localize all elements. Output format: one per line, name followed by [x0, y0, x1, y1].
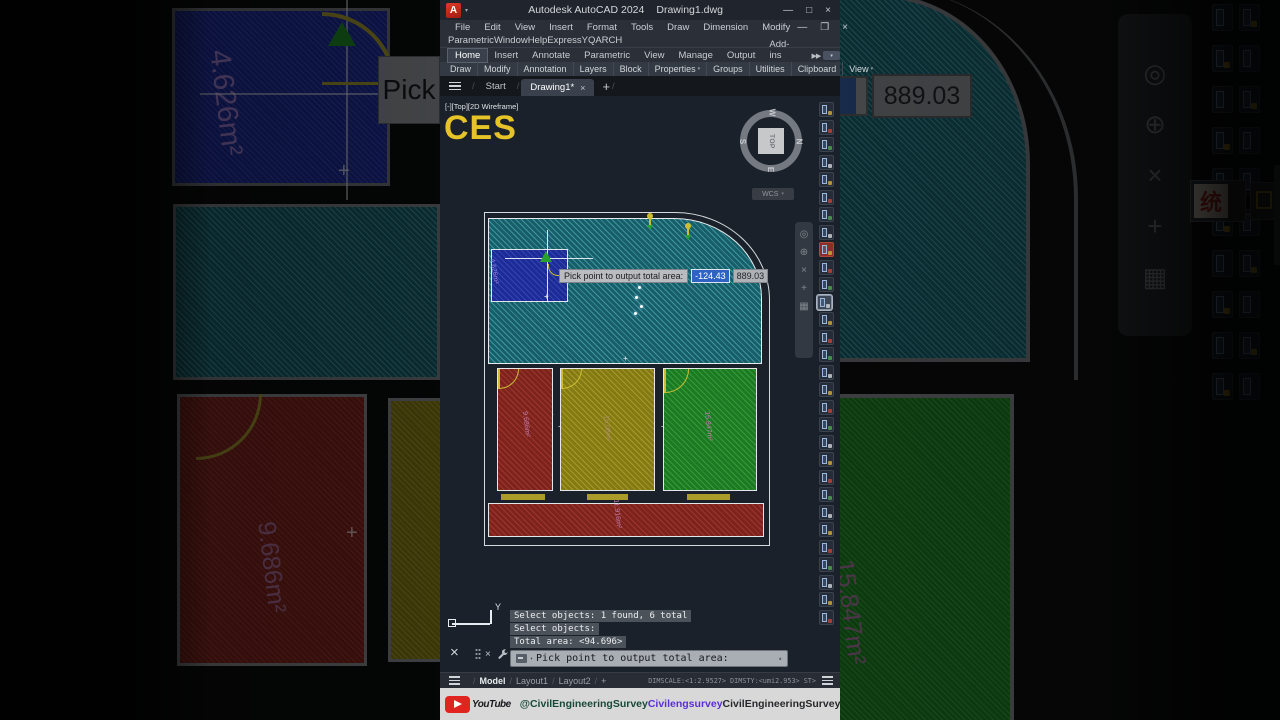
- tab-layout2[interactable]: Layout2: [559, 676, 591, 686]
- sparkle: [640, 305, 643, 308]
- pick-point-marker: [540, 251, 552, 262]
- wrench-icon[interactable]: [497, 648, 509, 666]
- ribbon-panel-row: Draw Modify Annotation Layers Block Prop…: [440, 62, 840, 76]
- menu-dimension[interactable]: Dimension: [696, 22, 755, 33]
- toolbar-icon[interactable]: [819, 155, 834, 170]
- ribbon-overflow-icon[interactable]: ▶▶: [811, 52, 820, 60]
- tab-insert[interactable]: Insert: [487, 49, 525, 62]
- screenshot-root: 4.626m² Pick 9.686m² + + 889.03 15.847m²…: [0, 0, 1280, 720]
- area-label-strip: 11.916m²: [612, 499, 622, 529]
- window-sill: [687, 494, 730, 500]
- viewcube-south[interactable]: S: [738, 139, 747, 144]
- close-button[interactable]: ×: [825, 5, 831, 16]
- tab-home[interactable]: Home: [448, 49, 487, 62]
- chevron-down-icon[interactable]: ▾: [530, 656, 533, 662]
- autocad-window: A ▾ Autodesk AutoCAD 2024 Drawing1.dwg —…: [440, 0, 840, 688]
- toolbar-icon[interactable]: [819, 312, 834, 327]
- youtube-wordmark: YouTube: [472, 699, 511, 710]
- navigation-bar[interactable]: ◎⊕×+▦: [795, 222, 813, 358]
- expand-history-icon[interactable]: ▴: [778, 655, 782, 662]
- toolbar-icon[interactable]: [819, 102, 834, 117]
- menu-modify[interactable]: Modify: [755, 22, 797, 33]
- panel-modify[interactable]: Modify: [478, 62, 518, 76]
- doc-minimize-button[interactable]: —: [797, 22, 807, 33]
- file-tab-drawing1[interactable]: Drawing1* ×: [521, 79, 594, 96]
- toolbar-icon[interactable]: [819, 452, 834, 467]
- toolbar-icon[interactable]: [819, 400, 834, 415]
- viewcube-top-face[interactable]: TOP: [758, 128, 784, 154]
- tab-separator: /: [517, 81, 520, 92]
- drag-handle-icon[interactable]: [475, 648, 481, 661]
- tab-output[interactable]: Output: [720, 49, 763, 62]
- command-close-icon[interactable]: ×: [450, 644, 459, 661]
- menu-insert[interactable]: Insert: [542, 22, 580, 33]
- sparkle: [638, 286, 641, 289]
- close-tab-icon[interactable]: ×: [580, 83, 585, 93]
- ucs-icon-origin: [448, 619, 456, 627]
- floor-plan-drawing: 4.626m² Pick point to output total area:…: [484, 212, 770, 546]
- tab-model[interactable]: Model: [480, 676, 506, 686]
- area-label-green: 15.847m²: [703, 411, 713, 441]
- area-label-olive: 15.08m²: [602, 415, 612, 441]
- strip-red: 11.916m²: [488, 503, 764, 537]
- tab-parametric[interactable]: Parametric: [577, 49, 637, 62]
- menu-express[interactable]: Express: [547, 35, 581, 46]
- panel-block[interactable]: Block: [614, 62, 649, 76]
- sparkle: [634, 312, 637, 315]
- door-hinge: [664, 369, 666, 393]
- toolbar-icon[interactable]: [819, 540, 834, 555]
- menu-window[interactable]: Window: [494, 35, 528, 46]
- channel-name-center: Civilengsurvey: [648, 698, 723, 710]
- chevron-down-icon: ▾: [698, 66, 701, 72]
- toolbar-icon[interactable]: [819, 557, 834, 572]
- ribbon-state-button[interactable]: ▾: [823, 51, 840, 60]
- menu-draw[interactable]: Draw: [660, 22, 696, 33]
- maximize-button[interactable]: □: [806, 5, 812, 16]
- panel-clipboard[interactable]: Clipboard: [792, 62, 844, 76]
- toolbar-icon[interactable]: [819, 610, 834, 625]
- autocad-logo-icon[interactable]: A: [446, 3, 461, 18]
- menu-parametric[interactable]: Parametric: [448, 35, 494, 46]
- window-sill: [587, 494, 628, 500]
- minimize-button[interactable]: —: [783, 5, 793, 16]
- tab-separator: /: [472, 81, 475, 92]
- command-prompt-text[interactable]: Pick point to output total area:: [536, 653, 729, 664]
- command-history: Select objects: 1 found, 6 total Select …: [510, 610, 691, 649]
- toolbar-icon[interactable]: [819, 120, 834, 135]
- tooltip-field-x[interactable]: -124.43: [691, 269, 730, 283]
- toolbar-icon[interactable]: [819, 207, 834, 222]
- tooltip-field-y[interactable]: 889.03: [733, 269, 769, 283]
- toolbar-icon[interactable]: [819, 172, 834, 187]
- room-olive: 15.08m²: [560, 368, 655, 491]
- tab-separator: /: [595, 676, 598, 686]
- chevron-down-icon: ▾: [871, 66, 874, 72]
- viewcube-east[interactable]: E: [766, 167, 775, 172]
- toolbar-icon[interactable]: [819, 137, 834, 152]
- toolbar-icon[interactable]: [819, 435, 834, 450]
- panel-annotation[interactable]: Annotation: [518, 62, 574, 76]
- toolbar-icon[interactable]: [819, 505, 834, 520]
- doc-restore-button[interactable]: ❐: [820, 22, 829, 33]
- chevron-down-icon: ▾: [830, 53, 833, 59]
- ucs-y-label: Y: [495, 602, 501, 612]
- toolbar-icon[interactable]: [819, 365, 834, 380]
- toolbar-icon[interactable]: [819, 382, 834, 397]
- tab-separator: /: [612, 81, 615, 92]
- panel-properties[interactable]: Properties▾: [649, 62, 708, 76]
- ribbon-tab-bar: Home Insert Annotate Parametric View Man…: [440, 47, 840, 62]
- tab-addins[interactable]: Add-ins: [762, 38, 806, 62]
- bg-left-dim-overlay: [0, 0, 440, 720]
- viewcube-west[interactable]: W: [767, 109, 776, 117]
- toolbar-icon[interactable]: [819, 575, 834, 590]
- grip-point: +: [623, 356, 628, 362]
- tab-layout1[interactable]: Layout1: [516, 676, 548, 686]
- tab-separator: /: [552, 676, 555, 686]
- window-sill: [501, 494, 545, 500]
- toolbar-icon[interactable]: [819, 487, 834, 502]
- bg-right-dim-overlay: [840, 0, 1280, 720]
- dim-style-status[interactable]: DIMSCALE:<1:2.9527> DIMSTY:<umi2.953> ST…: [648, 677, 816, 685]
- tooltip-label: Pick point to output total area:: [559, 269, 688, 283]
- door-hinge: [498, 369, 500, 389]
- watermark-text: CES: [444, 109, 517, 148]
- file-tab-bar: / Start / Drawing1* × + /: [440, 76, 840, 96]
- close-icon[interactable]: ×: [485, 649, 491, 660]
- toolbar-icon[interactable]: [819, 470, 834, 485]
- toolbar-icon[interactable]: [819, 417, 834, 432]
- background-right-panel: 889.03 15.847m² ◎⊕×+▦ 统: [840, 0, 1280, 720]
- command-history-line: Select objects: 1 found, 6 total: [510, 610, 691, 622]
- app-title: Autodesk AutoCAD 2024: [528, 4, 644, 16]
- hamburger-menu-icon[interactable]: [449, 82, 461, 91]
- doc-close-button[interactable]: ×: [842, 22, 848, 33]
- layout-status-bar: / Model / Layout1 / Layout2 / + DIMSCALE…: [440, 672, 840, 688]
- window-title: Autodesk AutoCAD 2024 Drawing1.dwg: [468, 4, 783, 16]
- hamburger-menu-icon[interactable]: [822, 676, 833, 685]
- toolbar-icon[interactable]: [819, 347, 834, 362]
- youtube-play-icon: [445, 696, 470, 713]
- dynamic-input-tooltip: Pick point to output total area: -124.43…: [559, 269, 768, 283]
- tab-separator: /: [473, 676, 476, 686]
- hamburger-menu-icon[interactable]: [449, 676, 460, 685]
- viewcube-north[interactable]: N: [795, 139, 804, 145]
- menu-view[interactable]: View: [508, 22, 542, 33]
- menu-help[interactable]: Help: [528, 35, 548, 46]
- panel-draw[interactable]: Draw: [444, 62, 478, 76]
- ucs-icon: [452, 623, 490, 625]
- toolbar-icon[interactable]: [819, 330, 834, 345]
- panel-view[interactable]: View▾: [843, 62, 879, 76]
- grip-point: +: [544, 294, 549, 300]
- menu-format[interactable]: Format: [580, 22, 624, 33]
- command-input-bar[interactable]: ▾ Pick point to output total area: ▴: [510, 650, 788, 667]
- toolbar-icon[interactable]: [819, 277, 834, 292]
- menu-tools[interactable]: Tools: [624, 22, 660, 33]
- toolbar-icon[interactable]: [819, 522, 834, 537]
- command-history-line: Total area: <94.696>: [510, 636, 626, 648]
- channel-name-right: CivilEngineeringSurvey: [723, 698, 841, 710]
- title-bar: A ▾ Autodesk AutoCAD 2024 Drawing1.dwg —…: [440, 0, 840, 20]
- tab-manage[interactable]: Manage: [672, 49, 720, 62]
- wcs-dropdown[interactable]: WCS▾: [752, 188, 794, 200]
- area-label-red: 9.686m²: [521, 411, 531, 437]
- background-left-panel: 4.626m² Pick 9.686m² + +: [0, 0, 440, 720]
- tab-separator: /: [510, 676, 513, 686]
- model-space-canvas[interactable]: [-][Top][2D Wireframe] CES W N E S TOP W…: [440, 96, 840, 672]
- door-hinge: [561, 369, 563, 389]
- toolbar-icon[interactable]: [817, 295, 832, 310]
- channel-handle: @CivilEngineeringSurvey: [520, 698, 648, 710]
- toolbar-icon[interactable]: [819, 592, 834, 607]
- side-toolbar-column: [819, 102, 837, 625]
- new-drawing-button[interactable]: +: [602, 79, 610, 94]
- command-history-line: Select objects:: [510, 623, 599, 635]
- menu-yqarch[interactable]: YQARCH: [582, 35, 623, 46]
- tab-annotate[interactable]: Annotate: [525, 49, 577, 62]
- toolbar-icon[interactable]: [819, 242, 834, 257]
- panel-groups[interactable]: Groups: [707, 62, 750, 76]
- chevron-down-icon: ▾: [781, 191, 784, 197]
- toolbar-icon[interactable]: [819, 190, 834, 205]
- menu-file[interactable]: File: [448, 22, 477, 33]
- sparkle: [635, 296, 638, 299]
- menu-edit[interactable]: Edit: [477, 22, 507, 33]
- dimension-pin: [683, 223, 693, 237]
- panel-utilities[interactable]: Utilities: [750, 62, 792, 76]
- view-cube[interactable]: W N E S TOP: [740, 110, 802, 172]
- panel-layers[interactable]: Layers: [574, 62, 614, 76]
- channel-banner: YouTube @CivilEngineeringSurvey Civileng…: [440, 688, 840, 720]
- new-layout-button[interactable]: +: [601, 676, 606, 686]
- dimension-pin: [645, 213, 655, 227]
- toolbar-icon[interactable]: [819, 225, 834, 240]
- document-title: Drawing1.dwg: [656, 4, 723, 16]
- command-prompt-icon: [516, 654, 527, 663]
- menu-bar: File Edit View Insert Format Tools Draw …: [440, 20, 840, 34]
- tab-view[interactable]: View: [637, 49, 671, 62]
- toolbar-icon[interactable]: [819, 260, 834, 275]
- file-tab-start[interactable]: Start: [477, 81, 515, 92]
- ucs-icon-arm: [490, 610, 492, 624]
